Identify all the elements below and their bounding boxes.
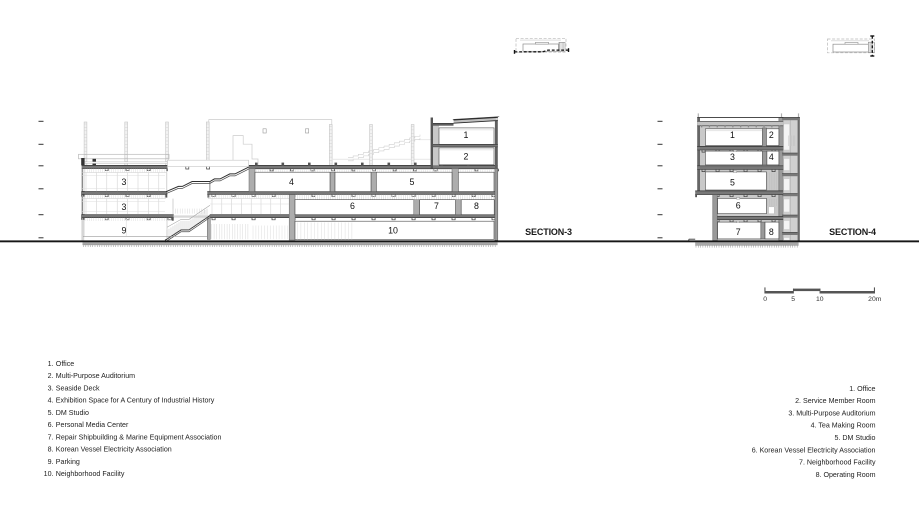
svg-text:6: 6 [350, 201, 355, 211]
svg-text:10.: 10. [44, 470, 54, 478]
svg-text:8.: 8. [48, 446, 54, 454]
svg-text:Parking: Parking [56, 458, 80, 466]
svg-text:2. Service Member Room: 2. Service Member Room [795, 397, 876, 405]
svg-text:5: 5 [410, 177, 415, 187]
svg-text:Korean Vessel Electricity Asso: Korean Vessel Electricity Association [56, 446, 172, 454]
svg-text:10: 10 [388, 226, 398, 236]
svg-text:4: 4 [289, 177, 294, 187]
svg-text:6. Korean Vessel Electricity A: 6. Korean Vessel Electricity Association [752, 446, 876, 454]
svg-text:7: 7 [434, 201, 439, 211]
svg-text:5.: 5. [48, 409, 54, 417]
svg-text:4. Tea Making Room: 4. Tea Making Room [811, 422, 876, 430]
svg-text:4: 4 [769, 152, 774, 162]
svg-text:20m: 20m [868, 296, 882, 303]
svg-text:5. DM Studio: 5. DM Studio [834, 434, 875, 442]
svg-text:2: 2 [769, 130, 774, 140]
svg-text:10: 10 [816, 296, 824, 303]
svg-text:SECTION-3: SECTION-3 [525, 227, 572, 237]
svg-text:DM Studio: DM Studio [56, 409, 89, 417]
svg-text:8. Operating Room: 8. Operating Room [816, 471, 876, 479]
svg-text:5: 5 [730, 177, 735, 187]
svg-text:Office: Office [56, 360, 74, 368]
svg-text:1: 1 [730, 130, 735, 140]
svg-text:4.: 4. [48, 397, 54, 405]
svg-text:Exhibition Space for A Century: Exhibition Space for A Century of Indust… [56, 397, 215, 405]
svg-text:SECTION-4: SECTION-4 [829, 227, 876, 237]
svg-text:Multi-Purpose Auditorium: Multi-Purpose Auditorium [56, 372, 135, 380]
svg-text:2.: 2. [48, 372, 54, 380]
svg-text:9: 9 [122, 226, 127, 236]
svg-text:1. Office: 1. Office [849, 385, 875, 393]
svg-text:7: 7 [736, 227, 741, 237]
svg-text:7. Neighborhood Facility: 7. Neighborhood Facility [799, 459, 876, 467]
svg-text:5: 5 [791, 296, 795, 303]
svg-text:0: 0 [763, 296, 767, 303]
svg-text:3: 3 [730, 152, 735, 162]
svg-text:Repair Shipbuilding & Marine E: Repair Shipbuilding & Marine Equipment A… [56, 433, 222, 441]
svg-text:7.: 7. [48, 433, 54, 441]
svg-text:1: 1 [464, 130, 469, 140]
svg-text:3.: 3. [48, 384, 54, 392]
svg-text:1.: 1. [48, 360, 54, 368]
svg-text:Seaside Deck: Seaside Deck [56, 384, 100, 392]
svg-text:3: 3 [122, 177, 127, 187]
svg-text:Neighborhood Facility: Neighborhood Facility [56, 470, 125, 478]
svg-text:3: 3 [122, 202, 127, 212]
svg-text:3. Multi-Purpose Auditorium: 3. Multi-Purpose Auditorium [788, 409, 875, 417]
svg-text:6.: 6. [48, 421, 54, 429]
svg-text:9.: 9. [48, 458, 54, 466]
svg-text:8: 8 [769, 227, 774, 237]
svg-text:2: 2 [464, 152, 469, 162]
svg-text:Personal Media Center: Personal Media Center [56, 421, 129, 429]
svg-text:6: 6 [736, 201, 741, 211]
svg-text:8: 8 [474, 201, 479, 211]
